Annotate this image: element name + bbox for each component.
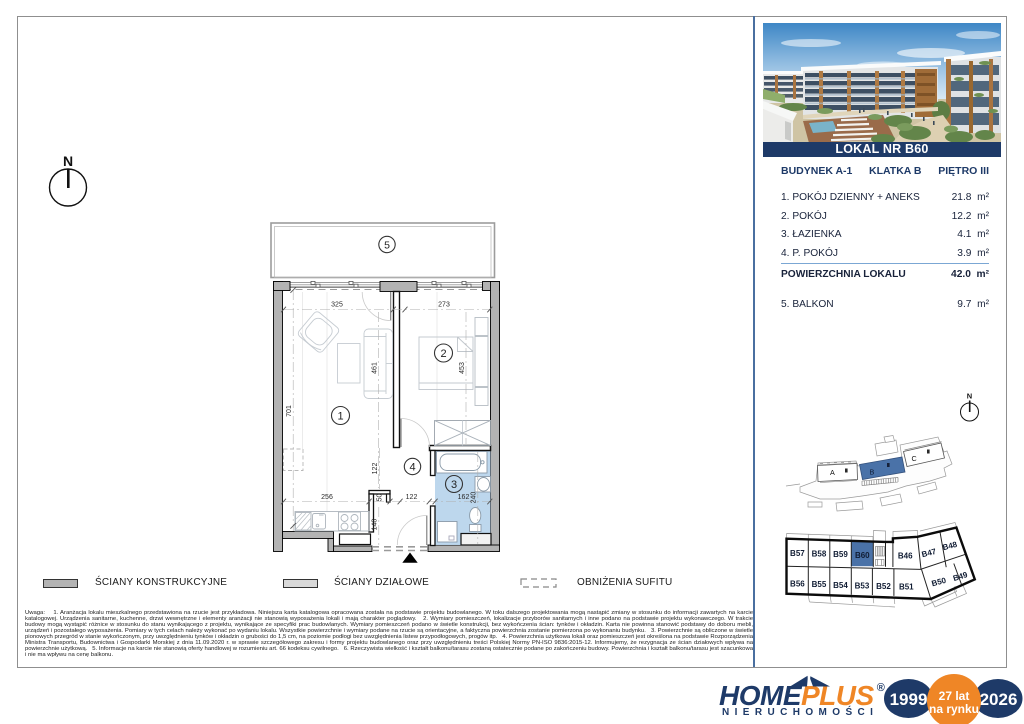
svg-text:461: 461 xyxy=(371,362,378,374)
svg-text:122: 122 xyxy=(372,463,379,475)
svg-text:B46: B46 xyxy=(898,552,913,561)
svg-text:162: 162 xyxy=(458,494,470,501)
svg-text:453: 453 xyxy=(459,362,466,374)
svg-text:256: 256 xyxy=(321,494,333,501)
svg-text:B48: B48 xyxy=(942,540,959,552)
svg-text:na rynku: na rynku xyxy=(929,702,979,716)
svg-text:B55: B55 xyxy=(812,580,827,589)
svg-text:148: 148 xyxy=(372,519,379,531)
svg-text:2: 2 xyxy=(440,348,446,360)
svg-text:1999: 1999 xyxy=(890,690,928,709)
svg-text:701: 701 xyxy=(286,405,293,417)
svg-text:B60: B60 xyxy=(855,551,870,560)
svg-text:B59: B59 xyxy=(833,550,848,559)
svg-text:1: 1 xyxy=(337,411,343,423)
svg-text:122: 122 xyxy=(406,494,418,501)
svg-text:N: N xyxy=(63,153,73,169)
svg-text:B49: B49 xyxy=(952,570,969,583)
svg-text:B52: B52 xyxy=(876,582,891,591)
svg-text:240: 240 xyxy=(471,492,478,504)
svg-text:325: 325 xyxy=(331,302,343,309)
svg-text:B47: B47 xyxy=(921,547,938,559)
svg-text:27 lat: 27 lat xyxy=(939,689,970,703)
svg-text:B58: B58 xyxy=(812,550,827,559)
svg-text:273: 273 xyxy=(438,302,450,309)
svg-text:4: 4 xyxy=(409,462,415,474)
svg-text:B: B xyxy=(870,468,875,477)
svg-text:A: A xyxy=(830,468,835,477)
svg-text:N: N xyxy=(967,392,972,401)
svg-text:B50: B50 xyxy=(931,576,948,589)
svg-text:3: 3 xyxy=(451,479,457,491)
svg-text:B56: B56 xyxy=(790,580,805,589)
svg-text:2026: 2026 xyxy=(980,690,1018,709)
svg-text:B57: B57 xyxy=(790,549,805,558)
svg-text:B53: B53 xyxy=(855,582,870,591)
svg-text:B54: B54 xyxy=(833,581,848,590)
svg-text:5: 5 xyxy=(384,239,390,251)
svg-text:50: 50 xyxy=(377,494,384,502)
svg-text:B51: B51 xyxy=(899,583,914,592)
svg-text:C: C xyxy=(912,454,917,463)
